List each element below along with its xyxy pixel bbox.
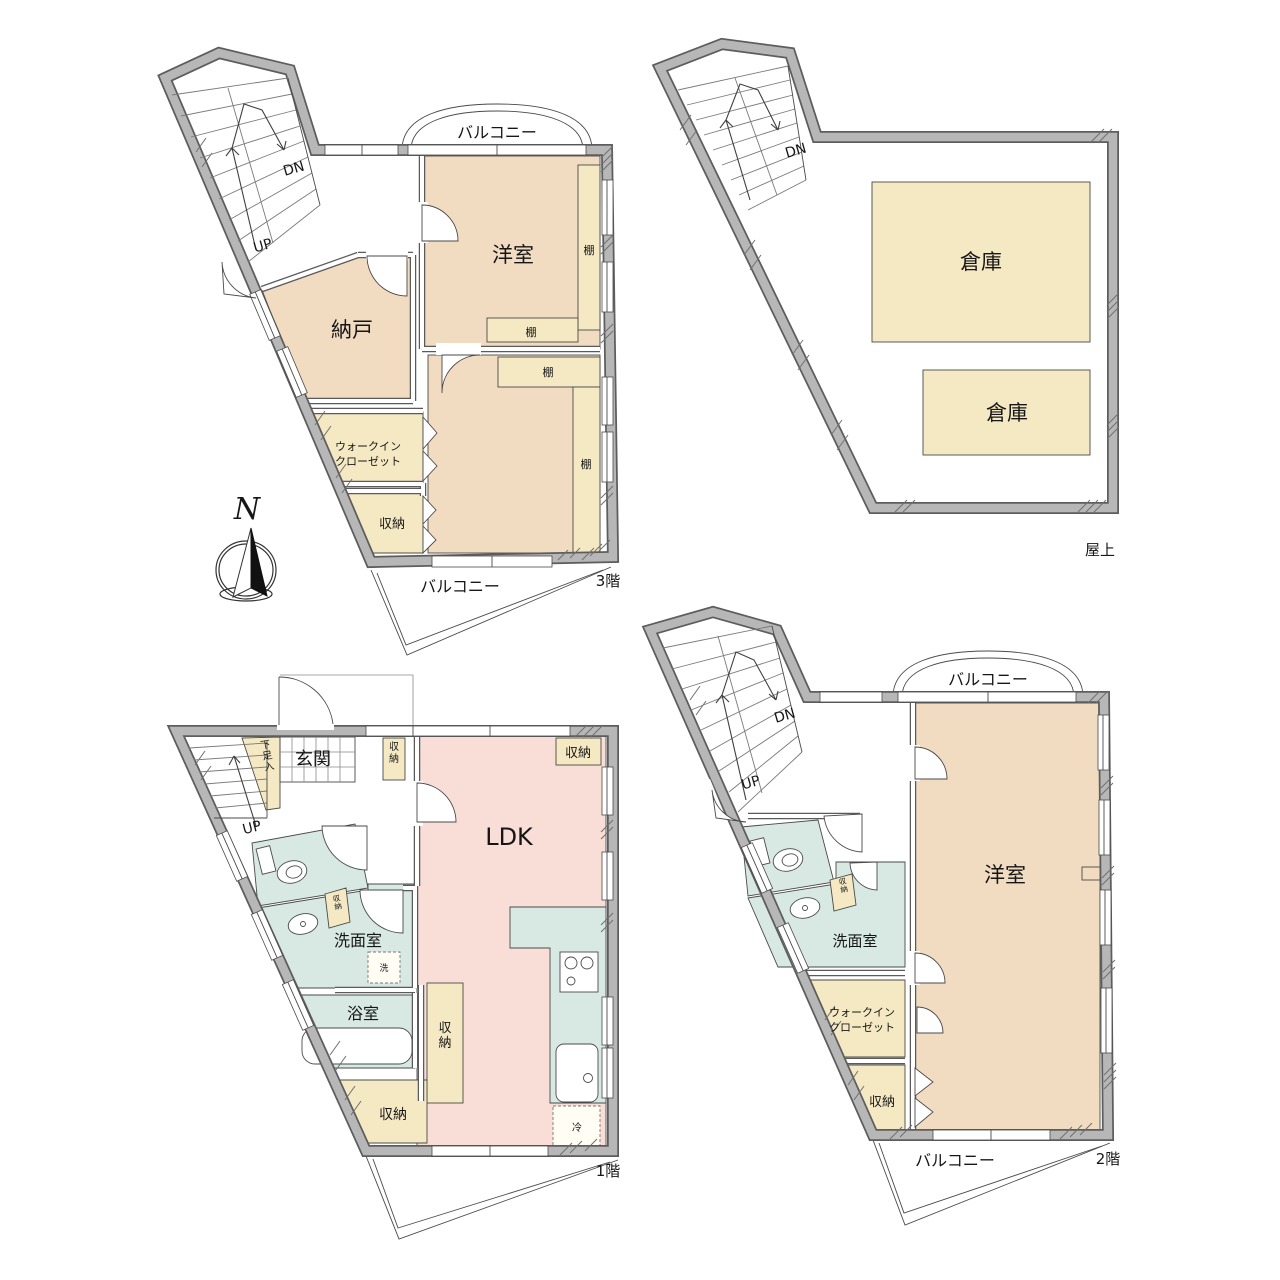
roof-plan: 倉庫 倉庫 DN 屋上 <box>660 44 1119 559</box>
floor1-storage-bottom-label: 収納 <box>379 1107 407 1123</box>
floor2-floor-label: 2階 <box>1096 1150 1121 1168</box>
floor3-balcony-bottom-label: バルコニー <box>420 577 500 596</box>
roof-storage2-label: 倉庫 <box>986 401 1028 425</box>
floor3-room-upper-label: 洋室 <box>492 243 534 267</box>
floor-plan-page: バルコニー 洋室 棚 棚 棚 棚 納戸 ウォークイン クローゼット 収納 DN … <box>0 0 1280 1280</box>
floor3-balcony-top-label: バルコニー <box>457 123 537 142</box>
floor1-porch <box>280 675 413 725</box>
floor3-shelf3-label: 棚 <box>543 365 554 379</box>
floor3-floor-label: 3階 <box>596 572 621 590</box>
compass-needle-white <box>233 528 251 597</box>
floor1-washer-label: 洗 <box>379 962 388 974</box>
floor2-washroom-label: 洗面室 <box>832 932 877 950</box>
compass-north-label: N <box>233 492 262 527</box>
floor1-kitchen-sink-icon <box>556 1044 598 1102</box>
floor2-room-label: 洋室 <box>984 863 1026 887</box>
floor1-washroom-label: 洗面室 <box>334 931 382 950</box>
floor3-wic-label1: ウォークイン <box>335 440 401 453</box>
floor2-storage-label: 収納 <box>869 1095 895 1110</box>
floor1-stove-icon <box>560 952 598 992</box>
roof-floor-label: 屋上 <box>1085 541 1115 559</box>
floor3-storage-label: 収納 <box>379 517 405 532</box>
floor2-wic-label2: クローゼット <box>829 1021 895 1034</box>
floor1-storage-mid-label: 収納 <box>438 1021 451 1051</box>
compass: N <box>216 492 276 601</box>
floor1-fridge-label: 冷 <box>572 1121 582 1134</box>
floor1-bath-label: 浴室 <box>347 1004 379 1023</box>
floor3-wic-label2: クローゼット <box>335 455 401 468</box>
floor-plan-drawing: バルコニー 洋室 棚 棚 棚 棚 納戸 ウォークイン クローゼット 収納 DN … <box>0 0 1280 1280</box>
floor2-wic-label1: ウォークイン <box>829 1006 895 1019</box>
floor3-shelf4-label: 棚 <box>581 457 592 471</box>
floor1-floor-label: 1階 <box>596 1162 621 1180</box>
floor3-nando-label: 納戸 <box>331 318 373 342</box>
floor1-plan: 玄関 下足入 収納 収納 LDK 洗面室 収納 洗 浴室 収納 収納 冷 UP … <box>176 675 620 1239</box>
floor2-plan: バルコニー 洋室 洗面室 収納 ウォークイン クローゼット 収納 DN UP バ… <box>650 612 1120 1225</box>
floor1-ldk-label: LDK <box>485 823 534 851</box>
floor2-balcony-top-label: バルコニー <box>948 670 1028 689</box>
floor3-shelf1-label: 棚 <box>584 243 595 257</box>
floor1-storage-top-right-label: 収納 <box>565 746 591 761</box>
compass-needle-black <box>251 528 267 596</box>
floor1-site-boundary <box>366 1156 618 1239</box>
roof-storage1-label: 倉庫 <box>960 250 1002 274</box>
floor1-entrance-label: 玄関 <box>295 749 331 770</box>
floor2-balcony-bottom-label: バルコニー <box>915 1151 995 1170</box>
floor3-shelf2-label: 棚 <box>526 325 537 339</box>
floor3-plan: バルコニー 洋室 棚 棚 棚 棚 納戸 ウォークイン クローゼット 収納 DN … <box>165 53 620 655</box>
